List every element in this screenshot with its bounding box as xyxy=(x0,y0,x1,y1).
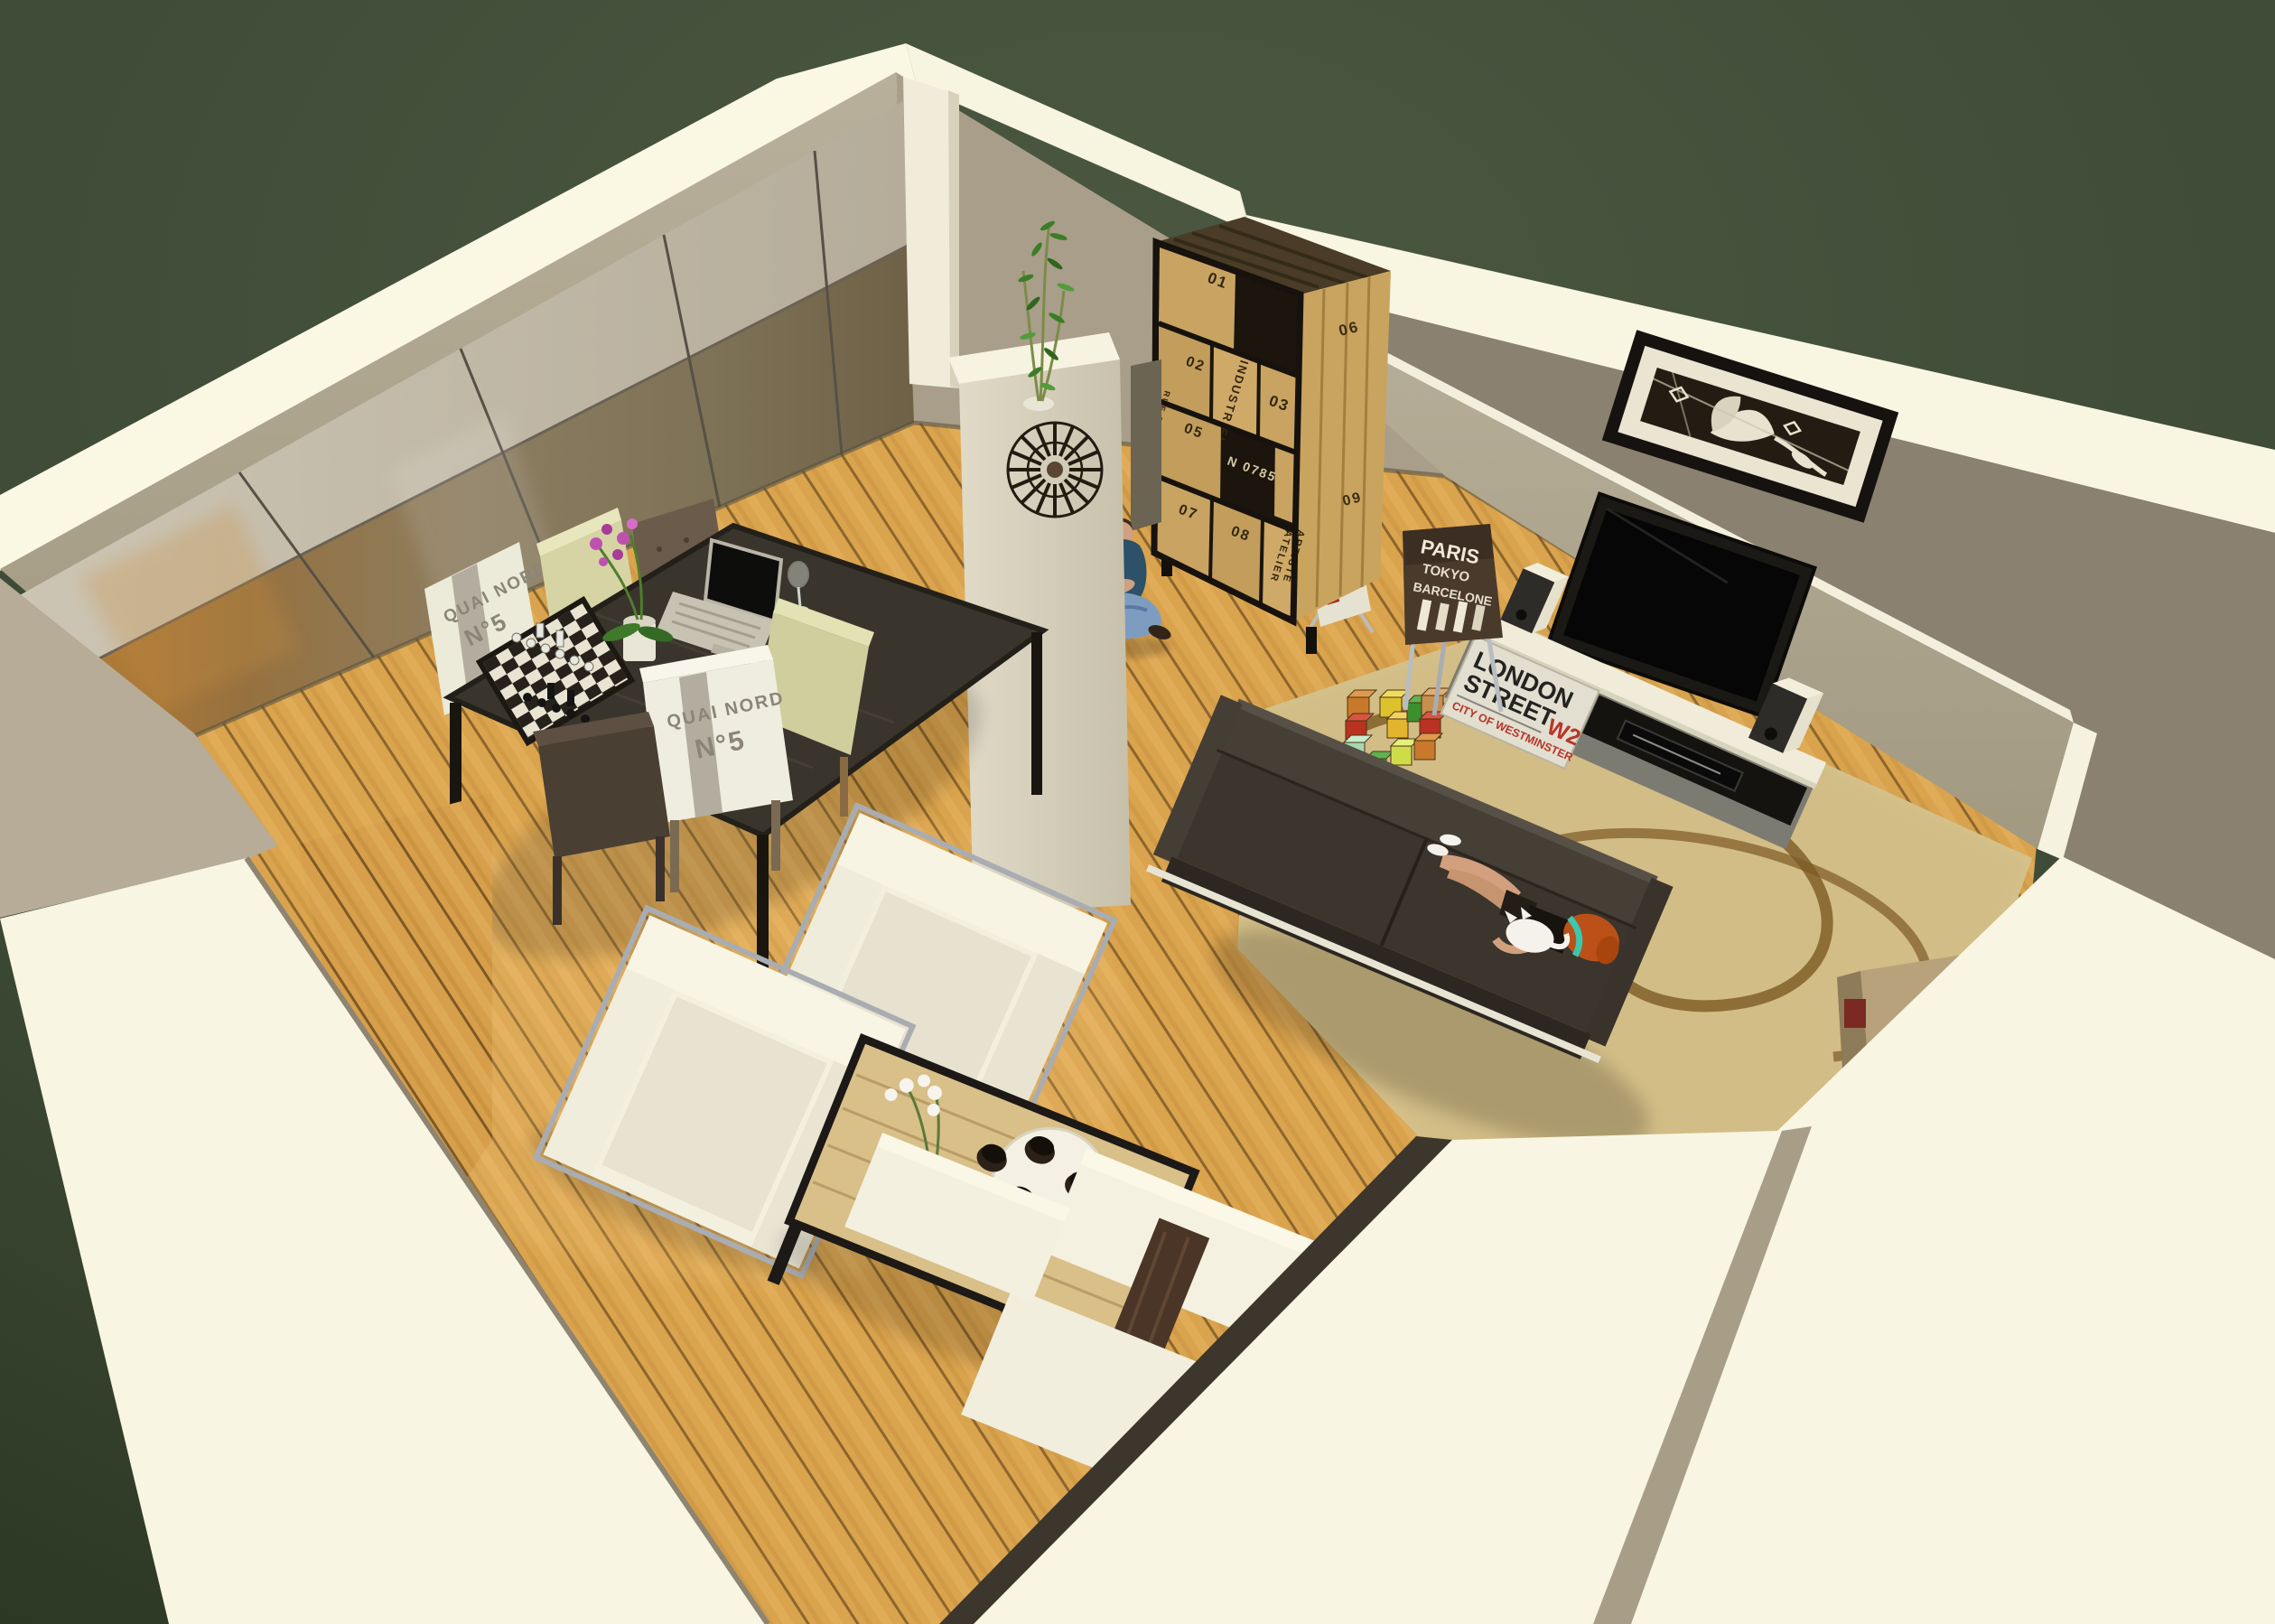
glass-stem xyxy=(798,587,800,607)
chair-leg xyxy=(670,820,679,892)
clock-center xyxy=(1047,462,1063,478)
corner-pilaster-shade xyxy=(948,90,959,388)
chair-leg xyxy=(840,757,848,817)
chair-leg xyxy=(553,856,562,925)
render-viewport: LONDON STREET W2 CITY OF WESTMINSTER xyxy=(0,0,2275,1624)
red-book xyxy=(1844,999,1866,1028)
shelf-leg xyxy=(1306,627,1317,654)
table-leg xyxy=(1031,632,1042,795)
chair-leg xyxy=(656,836,665,901)
room-render: LONDON STREET W2 CITY OF WESTMINSTER xyxy=(0,0,2275,1624)
chair-leg xyxy=(771,800,780,871)
chair-back xyxy=(538,726,670,858)
glass-bowl xyxy=(788,562,808,587)
sunburst-clock xyxy=(1008,423,1102,517)
doorway-gap xyxy=(1131,359,1161,531)
